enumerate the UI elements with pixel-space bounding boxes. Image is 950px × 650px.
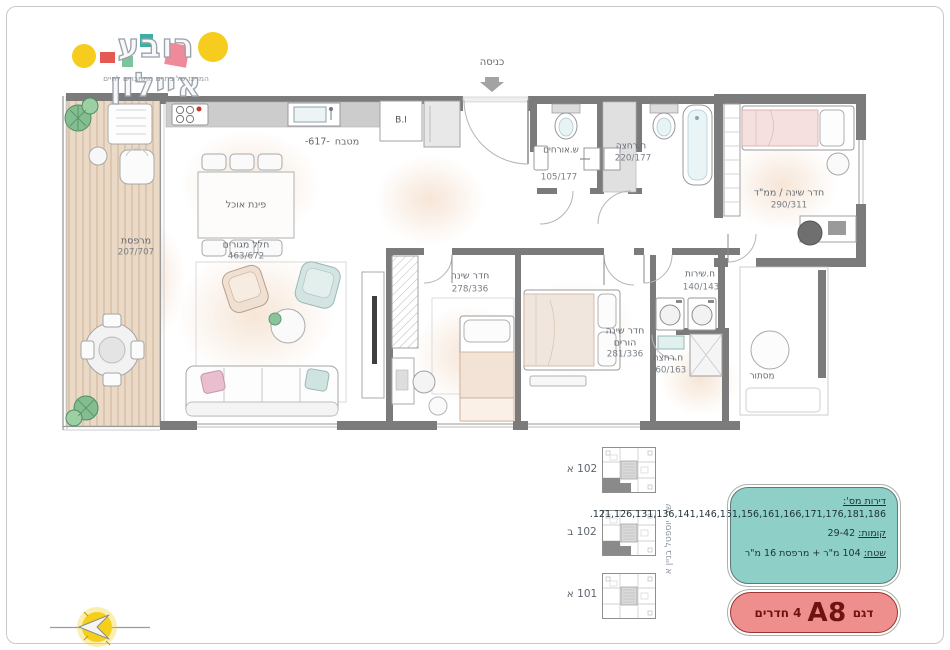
living-label: חלל מגורים (223, 240, 270, 250)
kitchen-label: מטבח-617- (305, 137, 359, 147)
bathroom-label: ח.רחצה (616, 143, 646, 152)
floors-label: קומות: (858, 528, 886, 539)
stove-knob-icon (197, 107, 202, 112)
key-plan-graphics (603, 448, 656, 619)
floors-row: קומות: 29-42 (742, 528, 886, 541)
entrance-arrow-icon (480, 77, 504, 92)
apartments-row: דירות מס': 121,126,131,136,141,146,151,1… (742, 496, 886, 521)
key-plan-101a (603, 574, 656, 619)
bedroom-label: חדר שינה (451, 271, 490, 281)
balcony-size: 207/707 (118, 249, 155, 258)
logo-tagline: המרכז של בת ים מתחברים לחיים (78, 74, 234, 83)
laptop-icon (828, 221, 846, 235)
tv-icon (372, 296, 377, 364)
guest-wc-size: 105/177 (541, 174, 578, 183)
sink-icon (658, 336, 684, 349)
floor-lamp (429, 397, 447, 415)
mamad-label: חדר שינה / ממ"ד (754, 188, 824, 198)
parents-bedroom-area (524, 255, 634, 386)
ac-unit (746, 388, 820, 412)
balcony-area (63, 93, 168, 430)
brochure-page: רובע איילון המרכז של בת ים מתחברים לחיים… (0, 0, 950, 650)
bathroom-size: 220/177 (615, 155, 652, 164)
built-in-label: B.I (395, 117, 407, 126)
model-rooms: 4 חדרים (755, 606, 802, 620)
bedroom-size: 278/336 (452, 286, 489, 295)
apartments-value: 121,126,131,136,141,146,151,156,161,166,… (590, 509, 886, 520)
apartments-label: דירות מס': (843, 496, 886, 507)
boiler-icon (751, 331, 789, 369)
shower-room-label: ח.רחצה (653, 355, 683, 364)
balcony-label: מרפסת (121, 236, 151, 246)
utility-size: 140/143 (683, 284, 720, 293)
office-chair (798, 221, 822, 245)
parents-bedroom-label2: הורים (614, 338, 637, 348)
street-caption: שד' יוספטל בניין א (664, 466, 674, 612)
shower-room-size: 160/163 (650, 367, 687, 376)
utility-label: ח.שירות (685, 271, 715, 280)
model-label: דגם (853, 606, 874, 620)
living-size: 463/672 (228, 253, 265, 262)
logo-title: רובע איילון (70, 26, 242, 104)
side-table (827, 153, 849, 175)
wardrobe (392, 256, 418, 348)
mamad-size: 290/311 (771, 202, 808, 211)
model-code: A8 (807, 600, 846, 626)
key-plan-label-102a: 102 א (567, 463, 597, 475)
concealment-area (740, 267, 828, 415)
entrance-door (463, 77, 528, 164)
key-plan-label-101a: 101 א (567, 588, 597, 600)
area-value: 104 מ"ר + מרפסת 16 מ"ר (745, 548, 861, 559)
fridge (424, 101, 460, 147)
apartment-info-box: דירות מס': 121,126,131,136,141,146,151,1… (730, 487, 898, 584)
entrance-label: כניסה (480, 58, 505, 68)
desk-chair (413, 371, 435, 393)
floors-value: 29-42 (828, 528, 856, 539)
concealment-label: מסתור (750, 373, 775, 382)
north-compass-icon (50, 607, 150, 647)
logo: רובע איילון המרכז של בת ים מתחברים לחיים (70, 26, 242, 84)
plant-icon (269, 313, 281, 325)
key-plan-label-102b: 102 ב (567, 526, 596, 538)
area-label: שטח: (864, 548, 886, 559)
model-box: דגם A8 4 חדרים (730, 592, 898, 633)
parents-bedroom-size: 281/336 (607, 351, 644, 360)
area-row: שטח: 104 מ"ר + מרפסת 16 מ"ר (742, 548, 886, 561)
parents-bedroom-label: חדר שינה (606, 326, 645, 336)
dining-label: פינת אוכל (226, 200, 267, 210)
guest-wc-label: ש.אורחים (543, 147, 579, 156)
